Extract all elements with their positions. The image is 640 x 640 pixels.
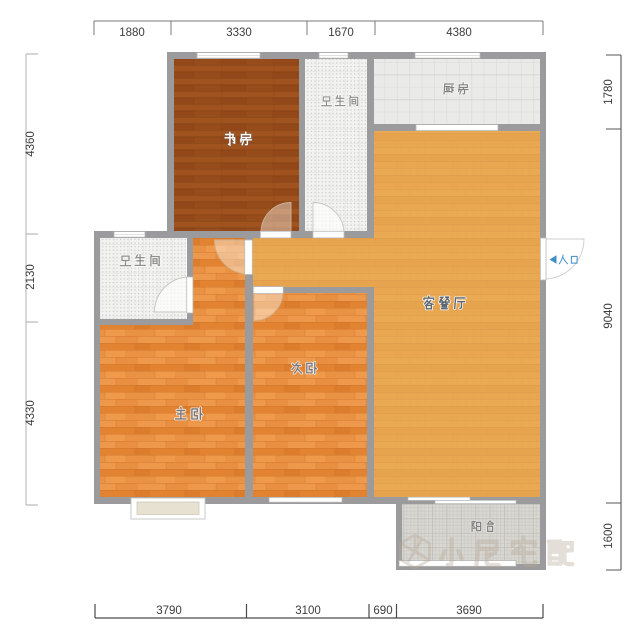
svg-text:4330: 4330 [25, 400, 37, 426]
svg-text:690: 690 [373, 605, 392, 617]
svg-text:3100: 3100 [295, 605, 321, 617]
svg-text:9040: 9040 [603, 303, 615, 329]
svg-text:4380: 4380 [446, 27, 472, 39]
svg-text:1880: 1880 [119, 27, 145, 39]
svg-text:3330: 3330 [226, 27, 252, 39]
svg-text:3690: 3690 [456, 605, 482, 617]
svg-text:3790: 3790 [156, 605, 182, 617]
svg-text:1780: 1780 [603, 79, 615, 105]
svg-text:4360: 4360 [25, 131, 37, 157]
svg-text:1600: 1600 [603, 523, 615, 549]
svg-text:2130: 2130 [25, 264, 37, 290]
svg-text:1670: 1670 [328, 27, 354, 39]
